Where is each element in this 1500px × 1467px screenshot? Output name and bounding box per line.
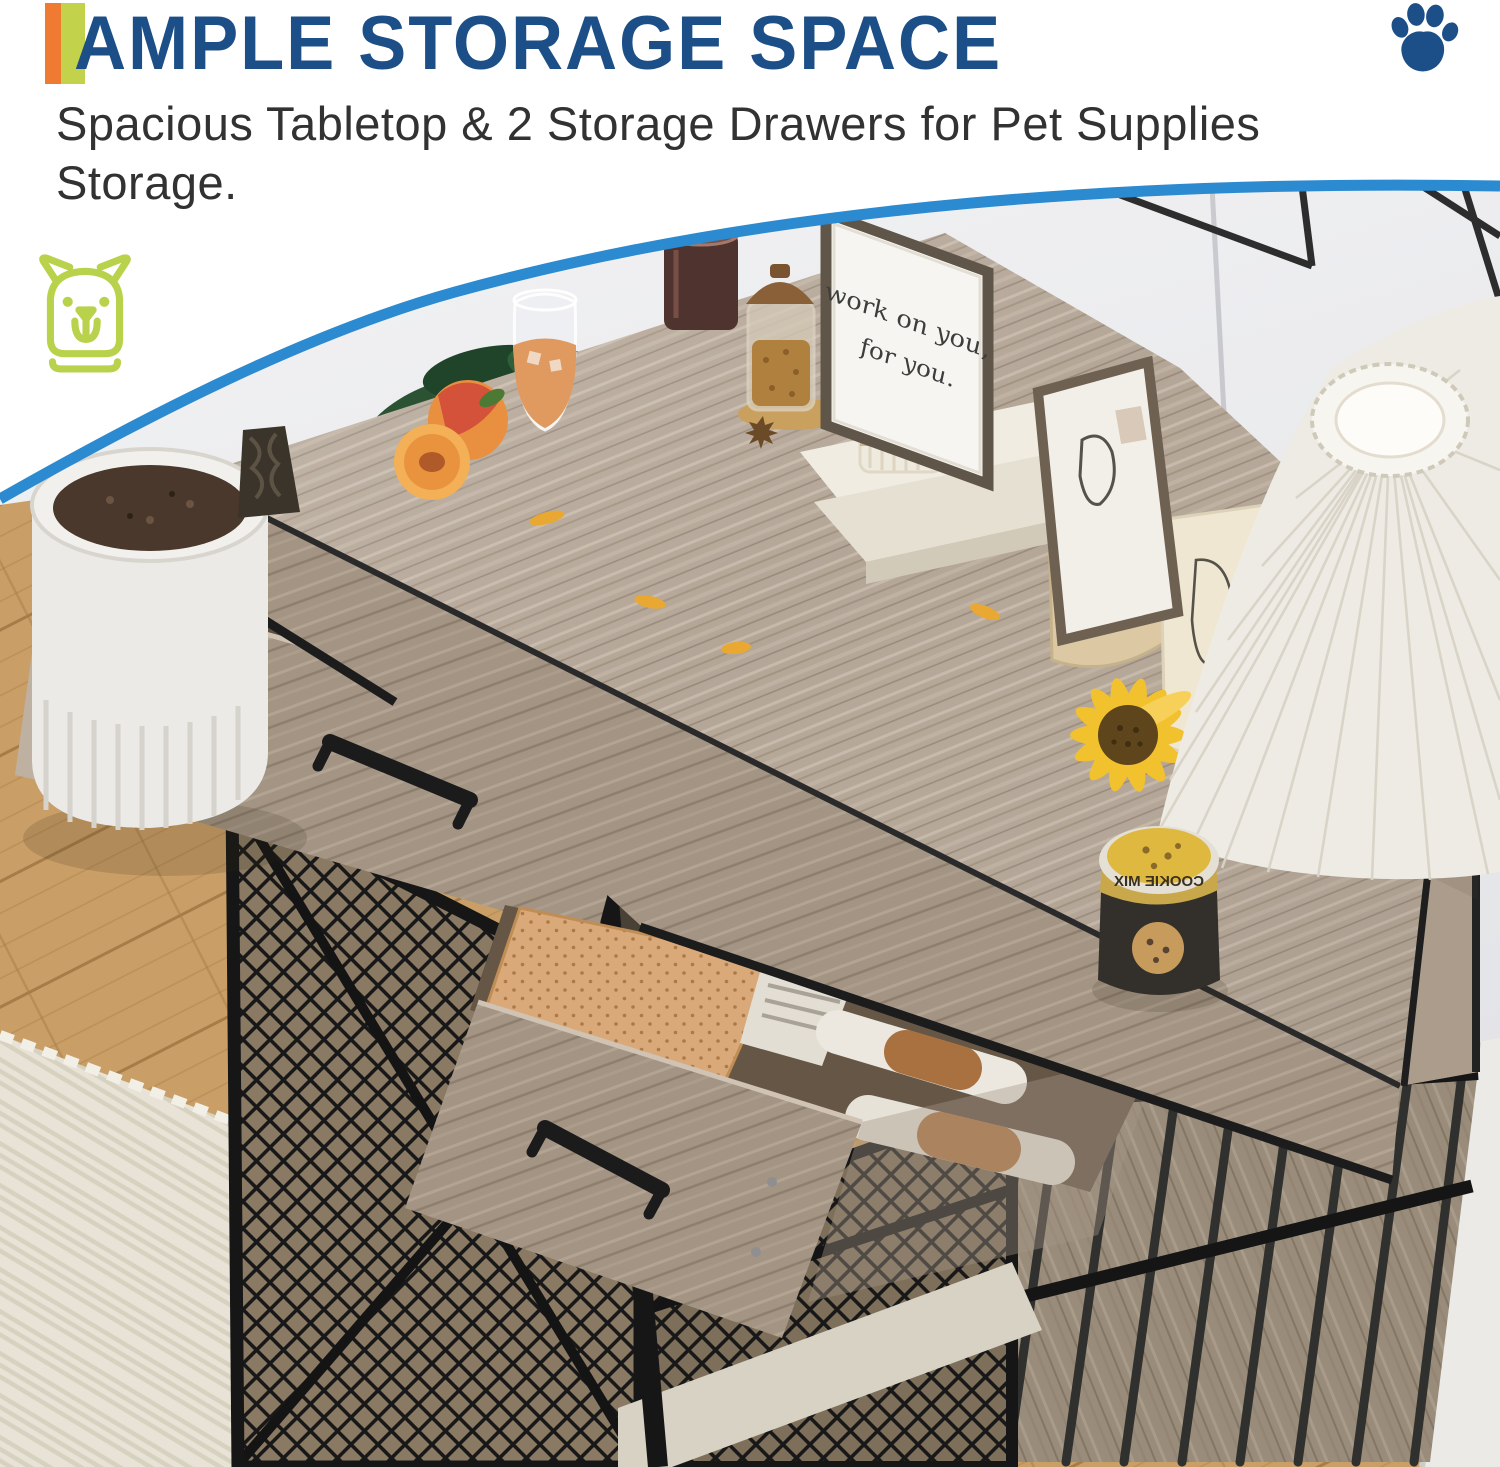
dog-face-icon <box>24 254 146 376</box>
subtitle: Spacious Tabletop & 2 Storage Drawers fo… <box>56 94 1260 212</box>
product-photo: XIM XIM <box>0 0 1500 1467</box>
accent-bar-orange <box>45 3 61 84</box>
subtitle-line1: Spacious Tabletop & 2 Storage Drawers fo… <box>56 94 1260 153</box>
paw-print-icon <box>1383 0 1461 76</box>
cookie-jar: COOKIE MIX <box>1092 826 1228 1012</box>
product-infographic: XIM XIM <box>0 0 1500 1467</box>
headline: AMPLE STORAGE SPACE <box>74 0 1002 88</box>
subtitle-line2: Storage. <box>56 153 1260 212</box>
cookie-jar-label: COOKIE MIX <box>1114 873 1204 890</box>
leaning-picture-frame <box>1038 362 1178 640</box>
